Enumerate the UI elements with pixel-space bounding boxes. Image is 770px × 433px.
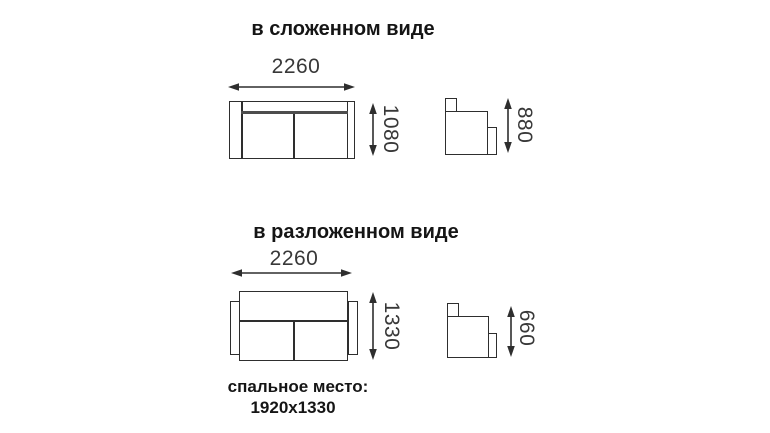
folded-armrest-right-line	[347, 101, 349, 159]
sleeping-area-size: 1920x1330	[250, 398, 335, 418]
unfolded-side-headrest-block	[447, 303, 459, 317]
folded-section-title: в сложенном виде	[251, 18, 434, 41]
sofa-dimensions-diagram: в сложенном виде 2260 1080	[0, 0, 770, 433]
folded-height-value: 880	[512, 107, 536, 144]
folded-topview-outline	[229, 101, 355, 159]
folded-side-headrest-block	[445, 98, 457, 112]
folded-side-front-block	[487, 127, 497, 155]
unfolded-width-arrow	[231, 267, 352, 279]
folded-backrest-bar	[241, 111, 348, 114]
unfolded-depth-arrow	[367, 292, 379, 360]
folded-side-body-block	[445, 111, 488, 155]
unfolded-seat-divider-line	[293, 321, 295, 361]
folded-width-value: 2260	[272, 55, 321, 79]
unfolded-side-body-block	[447, 316, 489, 358]
folded-seat-divider-line	[293, 114, 295, 159]
unfolded-section-title: в разложенном виде	[253, 221, 458, 244]
unfolded-armrest-right	[348, 301, 358, 355]
sleeping-area-label: спальное место:	[228, 377, 369, 397]
folded-armrest-left-line	[241, 101, 243, 159]
unfolded-depth-value: 1330	[379, 302, 403, 351]
folded-depth-value: 1080	[378, 105, 402, 154]
unfolded-height-value: 660	[514, 310, 538, 347]
folded-width-arrow	[228, 81, 355, 93]
